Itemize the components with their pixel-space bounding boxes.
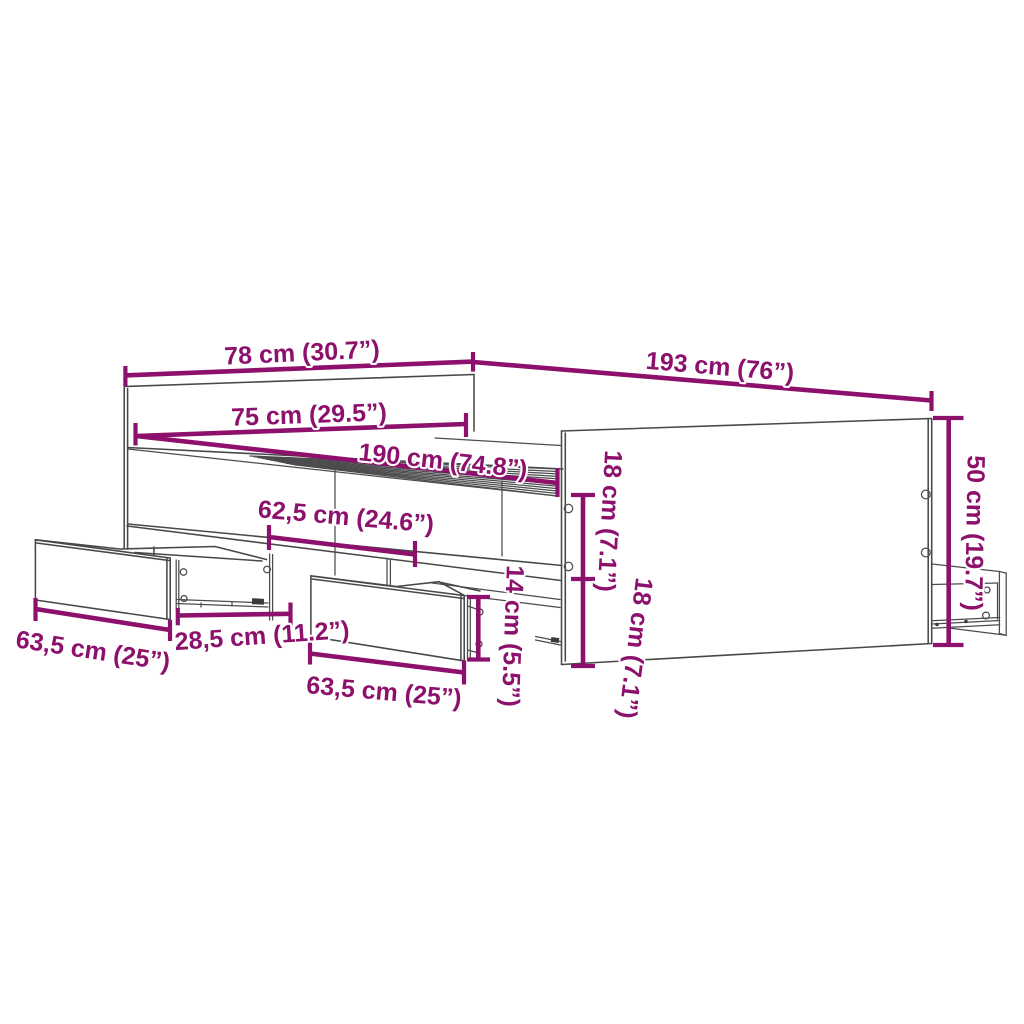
- svg-text:75 cm (29.5”): 75 cm (29.5”): [231, 398, 388, 431]
- svg-text:50 cm (19.7”): 50 cm (19.7”): [959, 455, 990, 611]
- svg-text:14 cm (5.5”): 14 cm (5.5”): [496, 565, 529, 708]
